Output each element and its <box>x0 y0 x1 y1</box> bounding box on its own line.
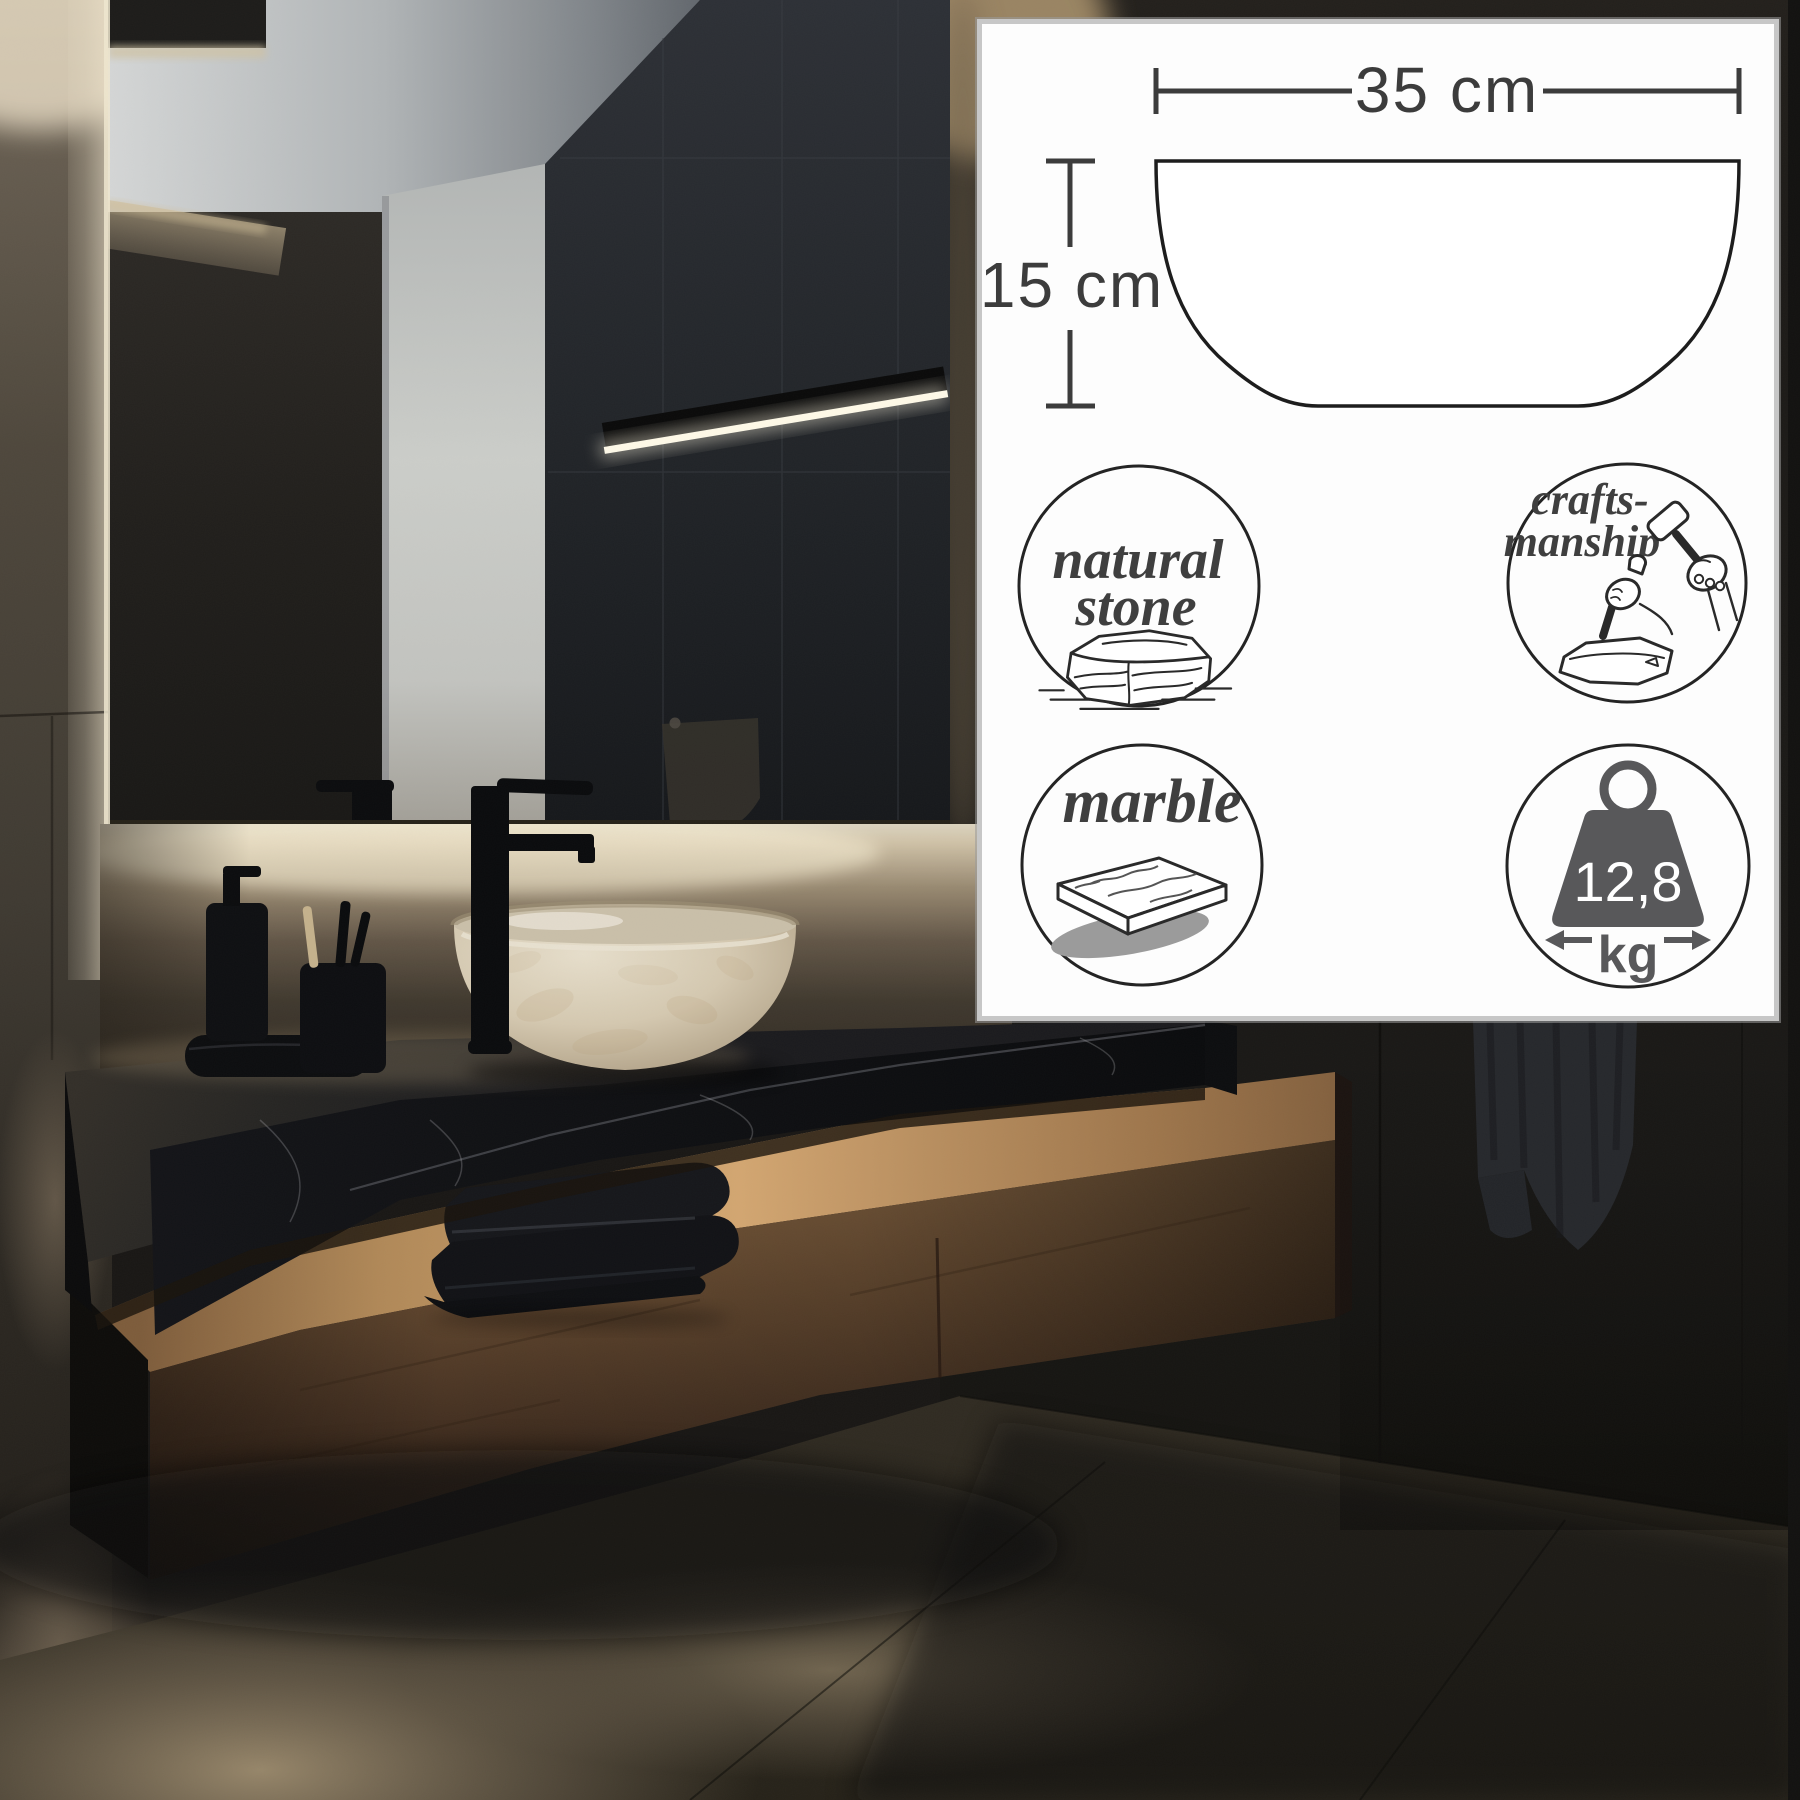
svg-text:kg: kg <box>1598 926 1659 984</box>
svg-text:15 cm: 15 cm <box>980 249 1164 321</box>
svg-text:35 cm: 35 cm <box>1355 54 1539 126</box>
svg-text:marble: marble <box>1062 768 1241 836</box>
svg-text:stone: stone <box>1074 576 1196 638</box>
svg-text:12,8: 12,8 <box>1574 850 1683 913</box>
